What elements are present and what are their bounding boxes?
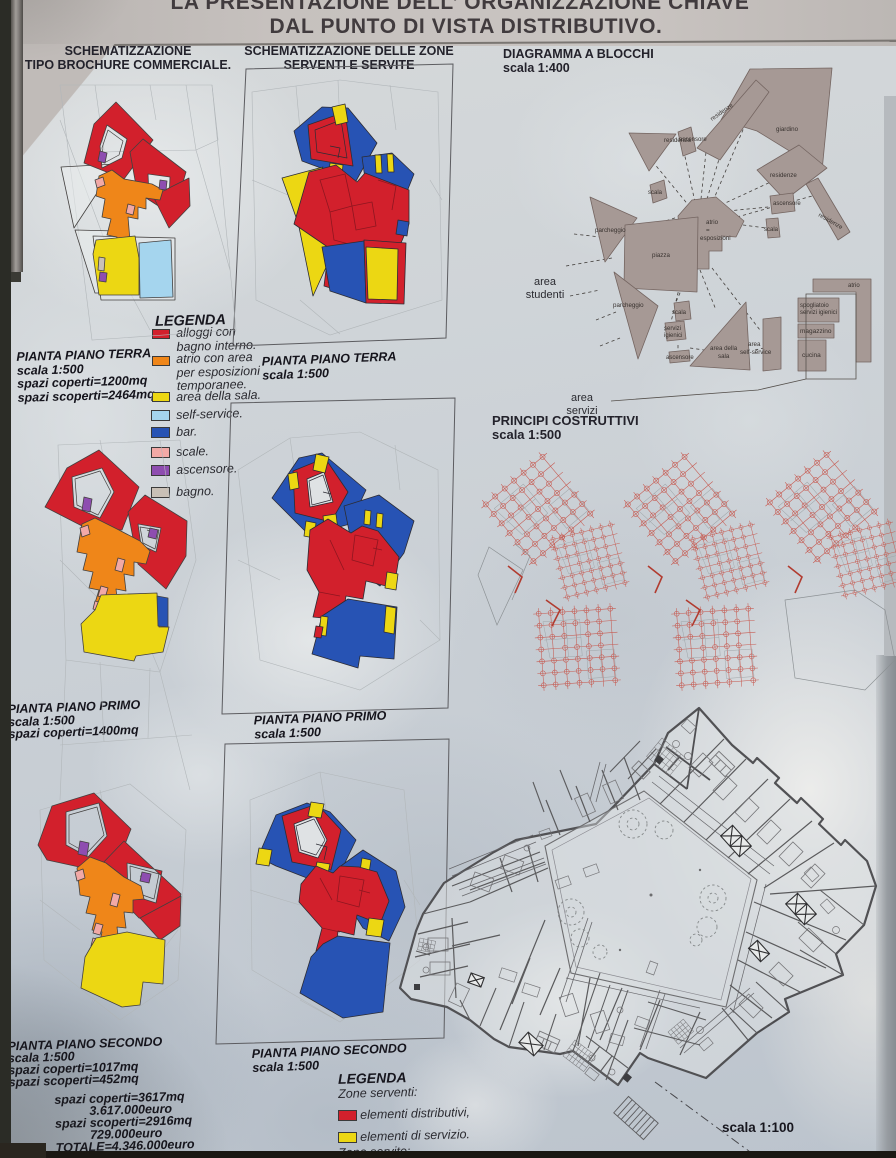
svg-text:atrio: atrio — [848, 283, 860, 289]
svg-text:area: area — [748, 341, 761, 348]
svg-text:ascensore: ascensore — [666, 355, 694, 361]
svg-text:cucina: cucina — [802, 352, 821, 359]
svg-text:area della: area della — [710, 345, 738, 352]
svg-text:scala: scala — [764, 227, 779, 233]
svg-text:scala: scala — [672, 310, 687, 316]
svg-text:sala: sala — [718, 353, 730, 360]
svg-text:igienici: igienici — [664, 333, 682, 339]
svg-text:scala: scala — [648, 190, 663, 196]
svg-text:magazzino: magazzino — [800, 328, 832, 335]
svg-text:ascensore: ascensore — [679, 137, 707, 143]
svg-text:ascensore: ascensore — [773, 201, 801, 207]
svg-text:servizi igienici: servizi igienici — [800, 310, 837, 316]
svg-text:servizi: servizi — [664, 326, 681, 332]
svg-text:parcheggio: parcheggio — [613, 302, 644, 309]
svg-text:atrio: atrio — [706, 219, 719, 226]
svg-text:parcheggio: parcheggio — [595, 227, 626, 234]
svg-text:residenze: residenze — [770, 172, 797, 179]
svg-text:self-service: self-service — [740, 349, 772, 356]
svg-text:piazza: piazza — [652, 252, 670, 259]
svg-text:esposizioni: esposizioni — [700, 235, 731, 242]
svg-text:giardino: giardino — [776, 126, 799, 133]
svg-text:=: = — [706, 227, 710, 234]
svg-text:spogliatoio: spogliatoio — [800, 303, 829, 309]
